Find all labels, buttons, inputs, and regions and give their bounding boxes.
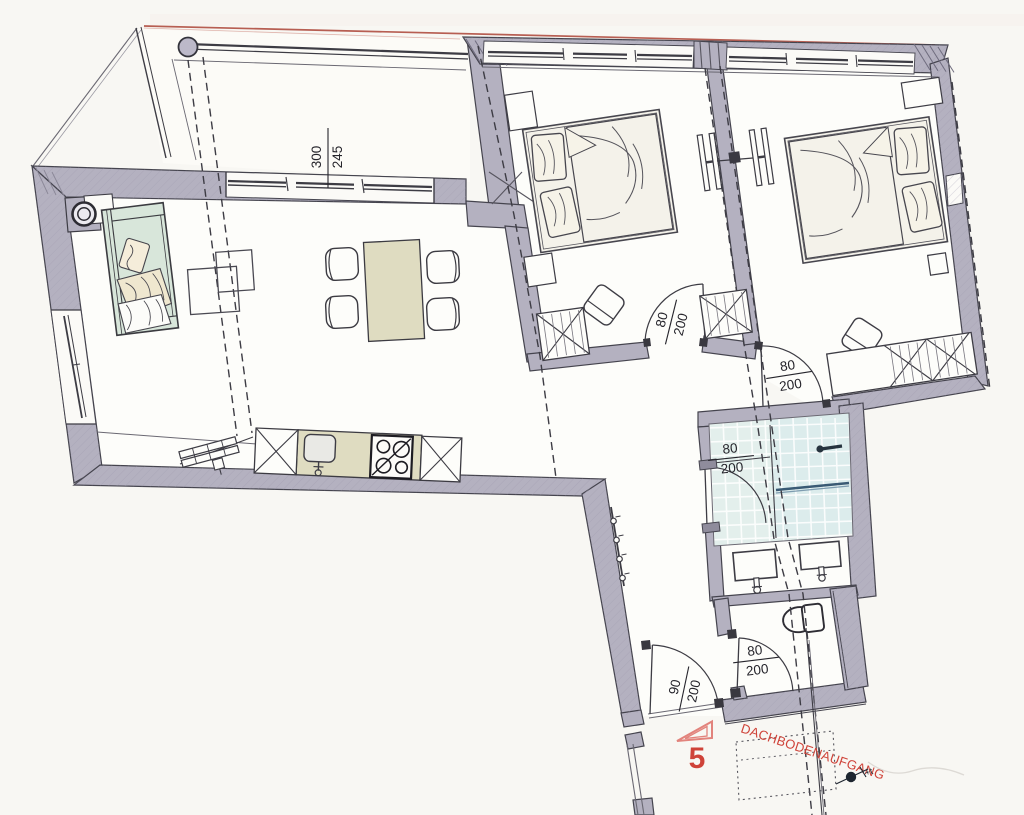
svg-text:5: 5 [689, 742, 706, 775]
svg-text:245: 245 [330, 146, 345, 169]
svg-text:80: 80 [746, 642, 763, 659]
svg-text:90: 90 [666, 678, 684, 696]
svg-text:300: 300 [309, 146, 324, 169]
svg-text:200: 200 [745, 661, 769, 679]
svg-text:80: 80 [722, 440, 739, 456]
svg-text:80: 80 [779, 357, 796, 374]
svg-text:200: 200 [720, 459, 744, 476]
